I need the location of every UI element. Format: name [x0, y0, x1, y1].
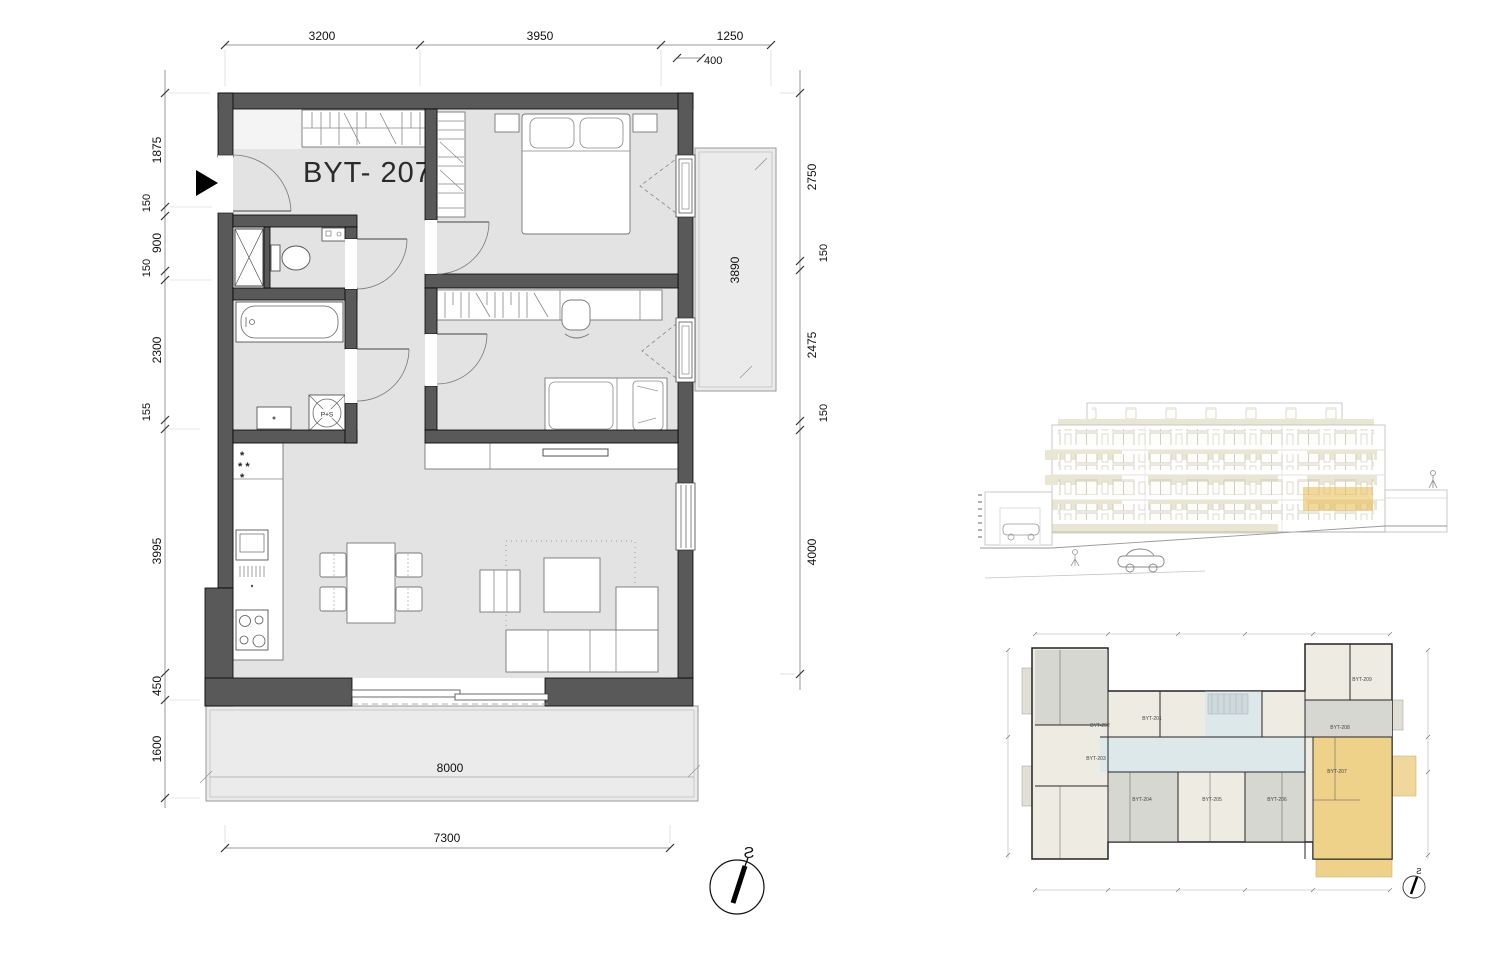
- washer-label: P+S: [321, 412, 334, 419]
- dim-top-sub: 400: [704, 55, 722, 67]
- dim-left-2: 150: [141, 194, 153, 212]
- entrance-arrow-icon: [196, 170, 218, 196]
- floor-plan-sheet: { "plan": { "apartment_label": "BYT- 207…: [0, 0, 1492, 960]
- dimensions-top: 3200 3950 1250 400: [221, 29, 775, 86]
- north-compass-icon: S: [710, 845, 764, 914]
- main-floor-plan: 8000 3890 BYT- 207: [141, 29, 830, 914]
- dim-left-9: 1600: [150, 735, 164, 762]
- cooktop: [236, 610, 268, 650]
- apt-label-207: BYT-207: [1327, 769, 1347, 775]
- dim-right-4: 150: [818, 404, 830, 422]
- dimensions-bottom: 7300: [221, 825, 674, 852]
- street-person: [1071, 550, 1079, 567]
- entry-niche: [233, 109, 302, 149]
- apt-label-205: BYT-205: [1202, 797, 1222, 803]
- dim-left-4: 150: [141, 259, 153, 277]
- dim-top-3: 1250: [717, 29, 744, 43]
- dim-bottom-total: 7300: [434, 831, 461, 845]
- terrace-sliding-door: [352, 690, 548, 704]
- compass-label: S: [744, 845, 755, 862]
- dim-right-3: 2475: [805, 331, 819, 358]
- dim-left-1: 1875: [150, 136, 164, 163]
- apt-label-204: BYT-204: [1132, 797, 1152, 803]
- terrace-dimension: 8000: [437, 761, 464, 775]
- dim-left-3: 900: [150, 233, 164, 253]
- dim-right-2: 150: [818, 244, 830, 262]
- coffee-table: [544, 558, 600, 612]
- apt-label-208: BYT-208: [1330, 725, 1350, 731]
- freezer-stars-3: *: [240, 472, 245, 484]
- dim-left-7: 3995: [150, 537, 164, 564]
- apt-label-206: BYT-206: [1267, 797, 1287, 803]
- side-balcony-dimension: 3890: [728, 256, 742, 283]
- highlight-balcony-tab: [1392, 756, 1416, 796]
- apt-label-202: BYT-202: [1090, 723, 1110, 729]
- dim-right-1: 2750: [805, 163, 819, 190]
- washer-dryer: P+S: [309, 395, 345, 431]
- dim-left-8: 450: [150, 676, 164, 696]
- corridor: [1100, 737, 1305, 772]
- overview-compass-icon: S: [1403, 867, 1425, 898]
- dim-top-1: 3200: [309, 29, 336, 43]
- highlight-terrace-tab: [1316, 859, 1392, 877]
- dim-left-6: 155: [141, 403, 153, 421]
- highlighted-unit-elevation: [1303, 487, 1373, 511]
- stairwell: [1208, 694, 1248, 714]
- highlighted-apartment: [1313, 737, 1392, 859]
- floor-overview-plan: BYT-201 BYT-202 BYT-203 BYT-204 BYT-205 …: [1006, 632, 1430, 898]
- street-car: [1118, 549, 1164, 572]
- terrace: 8000: [200, 706, 700, 801]
- dim-top-2: 3950: [527, 29, 554, 43]
- dimensions-right: 2750 150 2475 150 4000: [780, 70, 830, 690]
- side-balcony: 3890: [695, 148, 776, 391]
- shaft: [235, 229, 263, 286]
- drawing-canvas: 8000 3890 BYT- 207: [0, 0, 1492, 960]
- apt-label-201: BYT-201: [1142, 716, 1162, 722]
- overview-compass-label: S: [1416, 867, 1421, 876]
- kitchen: * * * *: [233, 443, 283, 660]
- building-elevation: [978, 403, 1447, 578]
- apartment-label: BYT- 207: [303, 157, 432, 189]
- dim-right-5: 4000: [805, 538, 819, 565]
- living-room-window: [676, 483, 695, 550]
- tv: [543, 449, 608, 456]
- dim-left-5: 2300: [150, 336, 164, 363]
- garage-block: [978, 492, 1052, 545]
- apt-label-209: BYT-209: [1352, 677, 1372, 683]
- apt-label-203: BYT-203: [1086, 756, 1106, 762]
- right-wing: [1385, 471, 1447, 533]
